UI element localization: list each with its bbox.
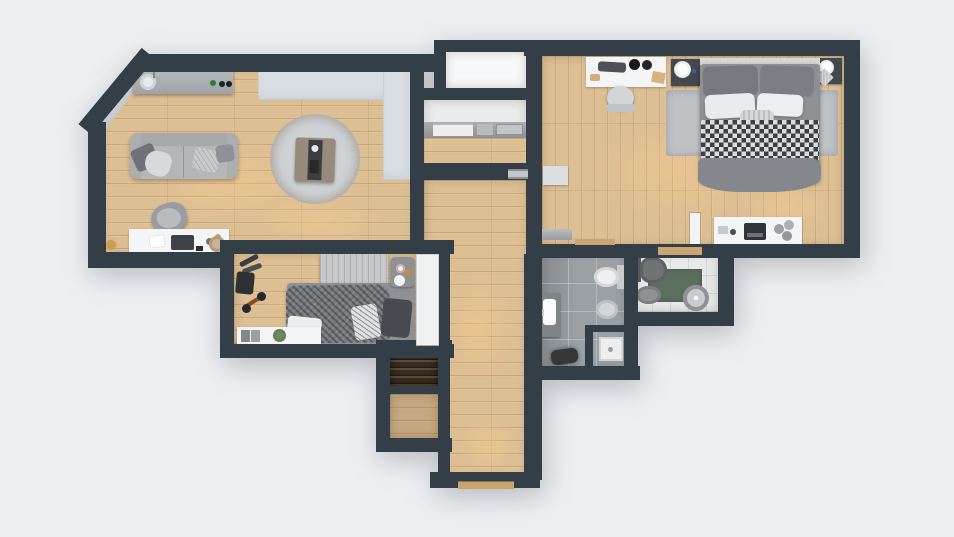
wall-master-right [844, 40, 860, 258]
table-book [310, 160, 319, 173]
basin-drain [694, 296, 698, 300]
wall-bath-bottom [524, 366, 640, 380]
floor-plan [0, 0, 954, 537]
round-basin [683, 285, 709, 311]
wall-living-right [410, 54, 424, 254]
dresser [714, 217, 802, 244]
cushion-diamond [350, 303, 382, 341]
exercise-bike [241, 289, 268, 315]
papers [149, 235, 164, 248]
screenshot-canvas [0, 0, 954, 537]
wall-master-top [524, 40, 860, 56]
cutting-board [651, 71, 666, 84]
chair-garment [155, 205, 183, 230]
radiator-cabinet [538, 229, 572, 240]
console-table [237, 327, 321, 345]
wall-niche-top [434, 40, 536, 52]
storage-niche-floor [446, 52, 526, 88]
threshold-bathroom-door [575, 239, 615, 245]
tray-stool [390, 257, 415, 287]
vanity-desk [586, 57, 666, 87]
storage-box [241, 330, 250, 342]
pillow-dark [759, 65, 814, 97]
cooktop-knob [219, 81, 225, 87]
toilet-2-bowl [640, 257, 667, 283]
appliance-counter [424, 122, 526, 138]
sofa-pillow-gray [215, 144, 235, 163]
wall-living-left [88, 122, 106, 268]
chair-back [606, 104, 636, 112]
utility-wood-strip [424, 138, 526, 163]
sofa [130, 133, 238, 179]
office-chair [604, 86, 638, 114]
toilet [594, 265, 626, 289]
sideboard [543, 166, 568, 185]
vase [784, 220, 794, 230]
wall-closet-left [376, 340, 390, 452]
small-appliance [477, 124, 493, 135]
wall-living-bottom [88, 252, 234, 268]
table-lamp [674, 61, 691, 78]
laptop [171, 235, 194, 250]
wall-closet-bottom [376, 438, 452, 452]
wall-utility-top [424, 88, 536, 100]
bike-wheel [242, 304, 251, 313]
double-bed [700, 58, 820, 188]
wall-bedroom2-left [220, 246, 234, 358]
shower-tray [599, 337, 623, 361]
wall-sink [636, 286, 661, 304]
wall-hall-left-lower [438, 254, 450, 488]
bidet [596, 300, 618, 319]
cooktop-knob-green [210, 80, 216, 86]
washer [433, 123, 473, 136]
built-in-cabinet-side [383, 69, 412, 180]
nightstand-left [671, 59, 700, 86]
duvet-bottom [698, 158, 821, 192]
vanity-sink [543, 299, 556, 325]
typewriter [744, 223, 766, 240]
vase [782, 231, 792, 241]
small-appliance [496, 124, 523, 135]
storage-box [251, 330, 260, 342]
desk-decor [598, 61, 626, 72]
cooktop-knob [226, 81, 232, 87]
black-bowl [642, 60, 652, 70]
phone [196, 246, 203, 251]
coffee-table [294, 137, 336, 182]
wall-bedroom2-top [220, 240, 454, 254]
wardrobe-panel [416, 254, 439, 346]
sink-vanity [539, 293, 560, 337]
threshold-entrance-door [458, 481, 514, 489]
door-leaf [690, 213, 700, 246]
closet-storage-floor [390, 394, 438, 438]
plate [394, 275, 405, 286]
wall-toilet-right [718, 244, 734, 326]
small-decor-dark [730, 229, 736, 235]
threshold-utility [508, 169, 528, 179]
floor-lamp [106, 240, 116, 250]
sofa-seat-seam [183, 146, 184, 178]
wall-living-top [138, 54, 434, 72]
small-items [590, 74, 600, 81]
wall-bath-right-lower [624, 326, 638, 380]
typewriter-keys [747, 233, 763, 237]
wall-closet-top [376, 340, 452, 352]
black-bowl [629, 59, 640, 70]
croissant [404, 269, 412, 276]
toilet-bowl [594, 267, 619, 287]
toilet-2 [633, 257, 667, 283]
plant [273, 329, 286, 342]
threshold-toilet-door [658, 247, 702, 255]
shower-drain [608, 347, 613, 352]
wall-closet-separator [388, 386, 450, 394]
small-decor [718, 226, 728, 234]
cushion-dark [380, 298, 413, 339]
wall-center-vertical [526, 40, 542, 258]
bike-wheel [257, 292, 266, 301]
blue-decor [692, 69, 696, 73]
